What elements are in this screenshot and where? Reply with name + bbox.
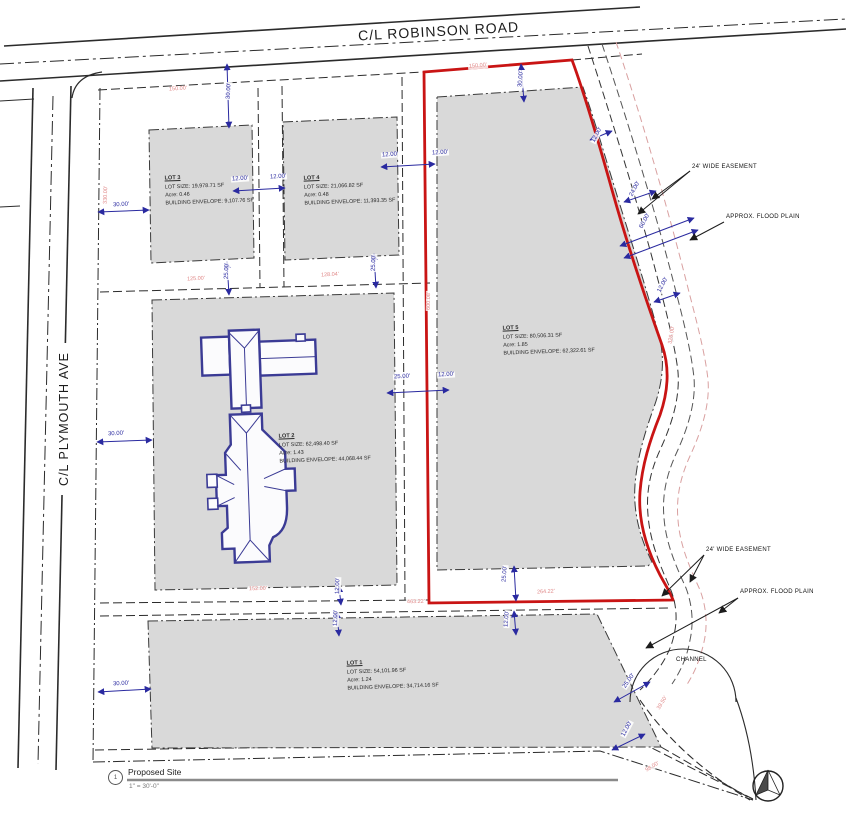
dimension-label: 264.22' bbox=[536, 588, 556, 595]
legend-title: Proposed Site bbox=[128, 767, 181, 777]
lot2-info: LOT 2 LOT SIZE: 62,498.40 SF Acre: 1.43 … bbox=[278, 430, 370, 465]
dimension-label: 25.00' bbox=[371, 254, 378, 272]
lot5-info: LOT 5 LOT SIZE: 80,506.31 SF Acre: 1.85 … bbox=[502, 322, 594, 357]
dimension-label: 30.00' bbox=[226, 82, 233, 100]
robinson-road-lines bbox=[0, 7, 846, 81]
dimension-label: 463.22' bbox=[406, 599, 426, 606]
dimension-label: 12.00' bbox=[335, 577, 342, 595]
dimension-label: 25.00' bbox=[393, 374, 411, 381]
dimension-label: 12.00' bbox=[431, 149, 450, 156]
dimension-label: 125.00' bbox=[186, 275, 206, 282]
dimension-label: 12.00' bbox=[381, 151, 400, 158]
legend-marker: 1 bbox=[108, 770, 123, 785]
easement-upper-label: 24' WIDE EASEMENT bbox=[692, 164, 757, 170]
dimension-label: 30.00' bbox=[112, 202, 130, 209]
plymouth-ave-lines bbox=[0, 72, 102, 770]
dimension-label: 30.00' bbox=[107, 431, 125, 438]
road-label-plymouth: C/L PLYMOUTH AVE bbox=[57, 343, 71, 495]
dimension-label: 30.00' bbox=[112, 681, 130, 688]
flood-upper-label: APPROX. FLOOD PLAIN bbox=[726, 214, 800, 220]
dimension-label: 330.00' bbox=[103, 185, 110, 205]
lot1-info: LOT 1 LOT SIZE: 54,101.96 SF Acre: 1.24 … bbox=[346, 657, 438, 692]
dimension-label: 600.08' bbox=[426, 291, 432, 311]
dimension-label: 152.00' bbox=[248, 586, 268, 593]
dimension-label: 25.00' bbox=[501, 565, 508, 584]
channel-label: CHANNEL bbox=[676, 657, 707, 663]
dimension-label: 128.04' bbox=[320, 271, 340, 278]
dimension-label: 12.00' bbox=[269, 173, 288, 180]
legend-scale: 1" = 30'-0" bbox=[129, 783, 159, 790]
dimension-label: 12.00' bbox=[437, 372, 455, 379]
dimension-label: 12.00' bbox=[231, 175, 250, 182]
dimension-label: 25.00' bbox=[224, 262, 231, 280]
north-arrow-icon bbox=[753, 770, 783, 801]
site-plan-drawing: C/L ROBINSON ROAD C/L PLYMOUTH AVE LOT 3… bbox=[0, 0, 847, 820]
dimension-label: 12.00' bbox=[333, 609, 340, 627]
dimension-label: 12.00' bbox=[503, 610, 510, 629]
easement-lower-label: 24' WIDE EASEMENT bbox=[706, 547, 771, 553]
lot4-info: LOT 4 LOT SIZE: 21,066.82 SF Acre: 0.48 … bbox=[303, 172, 395, 207]
site-plan-linework bbox=[0, 0, 847, 820]
flood-lower-label: APPROX. FLOOD PLAIN bbox=[740, 589, 814, 595]
